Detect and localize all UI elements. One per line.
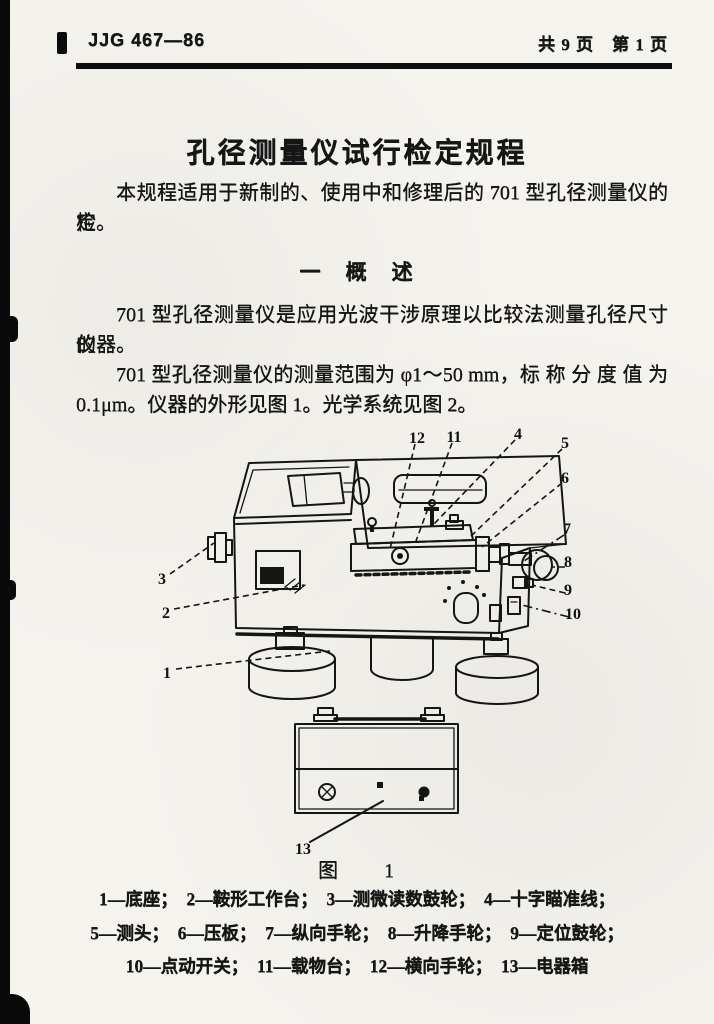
section-heading: 一 概 述 <box>0 256 714 286</box>
callout-2: 2 <box>162 605 170 622</box>
stage-assembly <box>351 500 509 575</box>
callout-8: 8 <box>564 554 572 571</box>
figure-legend-line: 5—测头； 6—压板； 7—纵向手轮； 8—升降手轮； 9—定位鼓轮； <box>40 920 674 945</box>
paragraph-line: 定。 <box>76 208 668 238</box>
callout-11: 11 <box>446 429 461 446</box>
figure-legend-line: 10—点动开关； 11—载物台； 12—横向手轮； 13—电器箱 <box>40 953 674 978</box>
callout-9: 9 <box>564 582 572 599</box>
document-number: JJG 467—86 <box>88 30 205 51</box>
electrical-box <box>295 708 458 813</box>
paragraph-line: 0.1μm。仪器的外形见图 1。光学系统见图 2。 <box>76 390 668 420</box>
paragraph-line: 本规程适用于新制的、使用中和修理后的 701 型孔径测量仪的检 <box>76 178 668 208</box>
callout-7: 7 <box>563 521 571 538</box>
handwheels <box>508 550 558 614</box>
page-title: 孔径测量仪试行检定规程 <box>0 131 714 171</box>
callout-6: 6 <box>561 470 569 487</box>
callout-leader-line <box>310 801 383 842</box>
callout-4: 4 <box>514 426 522 443</box>
instrument-front-view-drawing: 12 11 4 5 6 7 8 9 10 3 2 1 <box>132 421 632 711</box>
scan-smudge <box>0 994 30 1024</box>
paragraph-line: 701 型孔径测量仪的测量范围为 φ1～50 mm，标 称 分 度 值 为 <box>76 360 668 390</box>
scanned-document-page: JJG 467—86 共 9 页 第 1 页 孔径测量仪试行检定规程 本规程适用… <box>0 0 714 1024</box>
callout-5: 5 <box>561 435 569 452</box>
paragraph-line: 701 型孔径测量仪是应用光波干涉原理以比较法测量孔径尺寸的 <box>76 300 668 330</box>
page-count-info: 共 9 页 第 1 页 <box>538 30 668 55</box>
figure-caption: 图 1 <box>0 854 714 883</box>
callout-10: 10 <box>565 606 581 623</box>
scan-smudge <box>57 32 67 54</box>
scan-smudge <box>8 316 18 342</box>
scan-smudge <box>8 580 16 600</box>
micrometer-drum <box>208 533 232 562</box>
paragraph-line: 仪器。 <box>76 330 668 360</box>
machine-body <box>234 518 566 639</box>
top-deck <box>353 456 566 548</box>
callout-1: 1 <box>163 665 171 682</box>
header-rule <box>76 63 672 69</box>
callout-3: 3 <box>158 571 166 588</box>
viewer-housing <box>234 460 356 524</box>
callout-12: 12 <box>409 430 425 447</box>
electrical-box-drawing: 13 <box>286 706 471 858</box>
figure-legend-line: 1—底座； 2—鞍形工作台； 3—测微读数鼓轮； 4—十字瞄准线； <box>40 886 674 911</box>
